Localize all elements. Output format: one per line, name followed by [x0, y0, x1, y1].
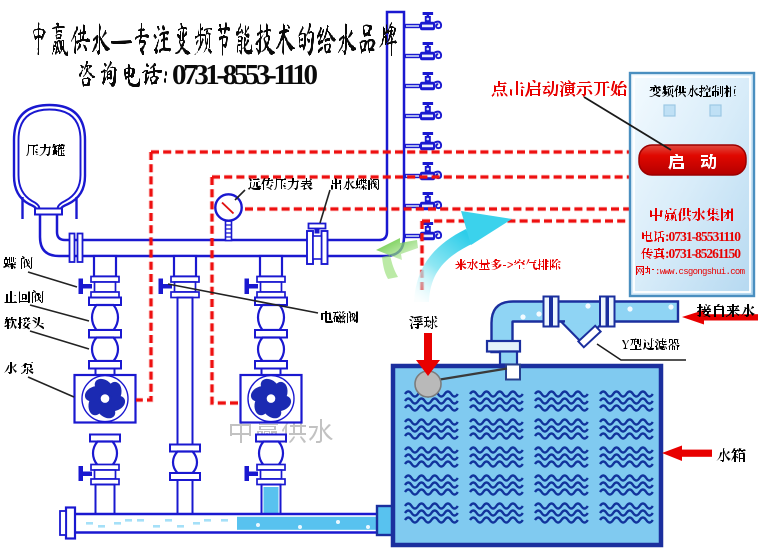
svg-text::www.csgongshui.com: :www.csgongshui.com — [655, 267, 745, 277]
svg-text:0731-8553-1110: 0731-8553-1110 — [172, 59, 318, 91]
svg-text::0731-85531110: :0731-85531110 — [665, 229, 741, 244]
svg-text::0731-85261150: :0731-85261150 — [665, 246, 741, 261]
